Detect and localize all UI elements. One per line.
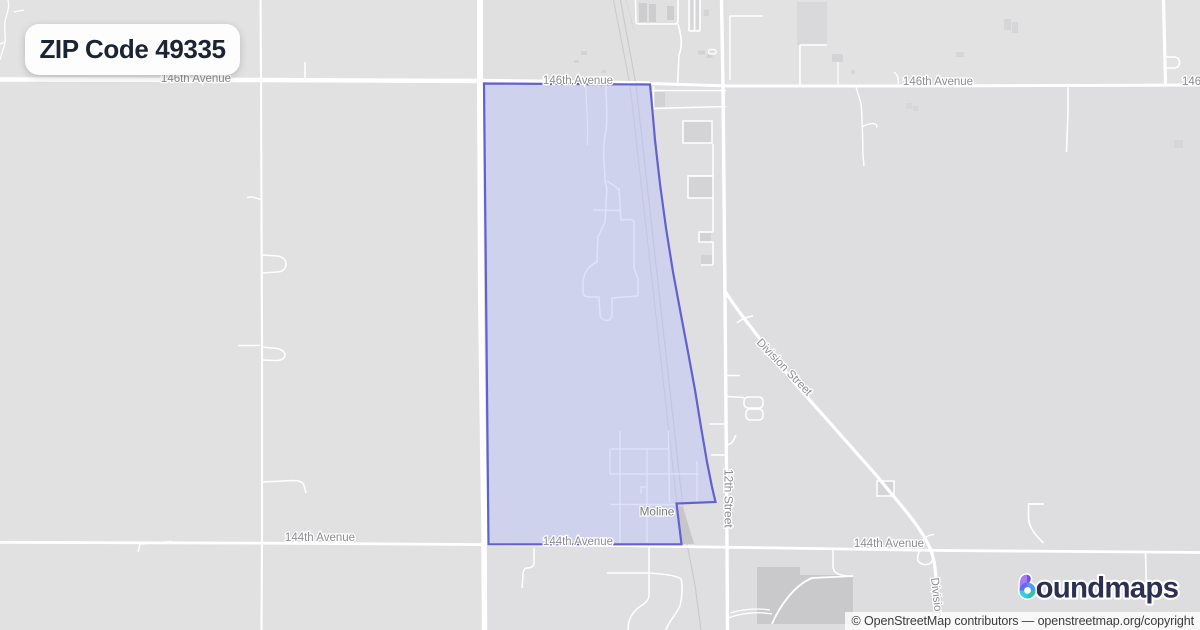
svg-text:146th Avenue: 146th Avenue bbox=[1182, 76, 1200, 88]
svg-text:144th Avenue: 144th Avenue bbox=[854, 538, 924, 550]
svg-text:146th Avenue: 146th Avenue bbox=[903, 76, 973, 88]
svg-text:Moline: Moline bbox=[640, 505, 675, 519]
svg-text:146th Avenue: 146th Avenue bbox=[543, 75, 613, 87]
svg-text:oundmaps: oundmaps bbox=[1036, 572, 1179, 605]
svg-text:144th Avenue: 144th Avenue bbox=[543, 536, 613, 548]
svg-text:12th Street: 12th Street bbox=[722, 469, 736, 528]
svg-text:144th Avenue: 144th Avenue bbox=[285, 532, 355, 544]
